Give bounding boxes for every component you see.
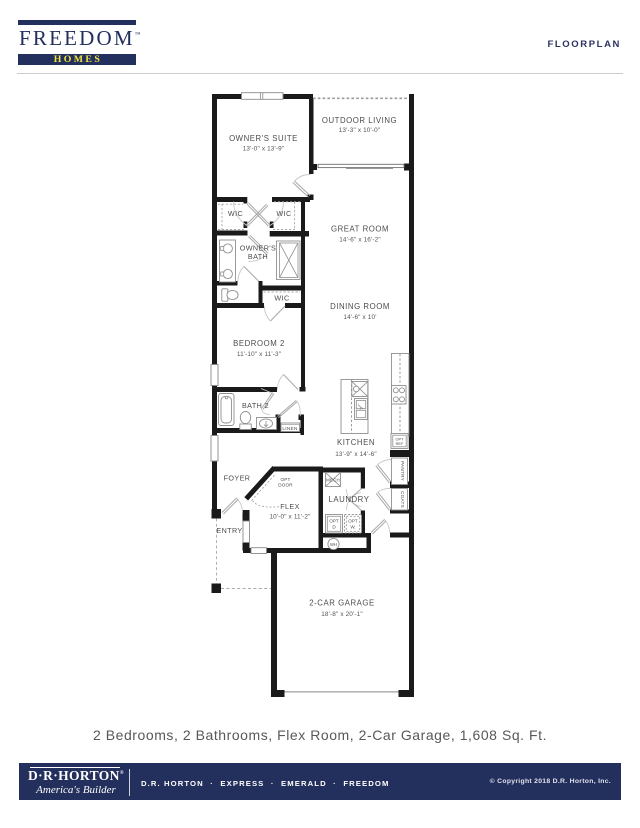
svg-text:13'-9" x 14'-6": 13'-9" x 14'-6" [335, 451, 377, 458]
svg-text:ENTRY: ENTRY [216, 526, 242, 535]
svg-text:BEDROOM 2: BEDROOM 2 [233, 339, 285, 348]
svg-text:18'-8" x 20'-1": 18'-8" x 20'-1" [321, 611, 363, 618]
svg-text:OUTDOOR LIVING: OUTDOOR LIVING [322, 116, 397, 125]
svg-text:OPT: OPT [329, 519, 339, 524]
svg-text:LAUNDRY: LAUNDRY [329, 495, 370, 504]
svg-text:WIC: WIC [228, 209, 243, 218]
svg-text:13'-0" x 13'-9": 13'-0" x 13'-9" [243, 146, 285, 153]
svg-text:BATH: BATH [248, 252, 268, 261]
svg-text:DINING ROOM: DINING ROOM [330, 302, 390, 311]
svg-text:WIC: WIC [276, 209, 291, 218]
svg-text:WIC: WIC [274, 294, 289, 303]
svg-text:COATS: COATS [400, 491, 405, 508]
svg-text:OPT: OPT [348, 519, 358, 524]
svg-text:MECH: MECH [326, 478, 340, 483]
svg-text:LINEN: LINEN [282, 426, 297, 432]
svg-text:OPT: OPT [280, 477, 290, 482]
svg-text:DOOR: DOOR [278, 483, 293, 488]
svg-text:13'-3" x 10'-0": 13'-3" x 10'-0" [339, 127, 381, 134]
svg-text:2-CAR GARAGE: 2-CAR GARAGE [309, 599, 375, 608]
svg-text:PANTRY: PANTRY [400, 461, 405, 481]
svg-text:W.: W. [350, 525, 355, 530]
svg-text:REF: REF [396, 441, 404, 446]
svg-text:BATH 2: BATH 2 [242, 401, 269, 410]
svg-text:14'-6" x 10': 14'-6" x 10' [343, 314, 376, 321]
svg-text:KITCHEN: KITCHEN [337, 438, 375, 447]
svg-text:14'-6" x 16'-2": 14'-6" x 16'-2" [339, 237, 381, 244]
svg-text:GREAT ROOM: GREAT ROOM [331, 225, 389, 234]
svg-text:11'-10" x 11'-3": 11'-10" x 11'-3" [237, 351, 281, 358]
svg-text:FLEX: FLEX [280, 502, 300, 511]
svg-text:FOYER: FOYER [224, 474, 251, 483]
svg-text:10'-0" x 11'-2": 10'-0" x 11'-2" [269, 514, 310, 521]
svg-text:WH: WH [330, 542, 337, 547]
svg-text:OWNER'S SUITE: OWNER'S SUITE [229, 134, 298, 143]
